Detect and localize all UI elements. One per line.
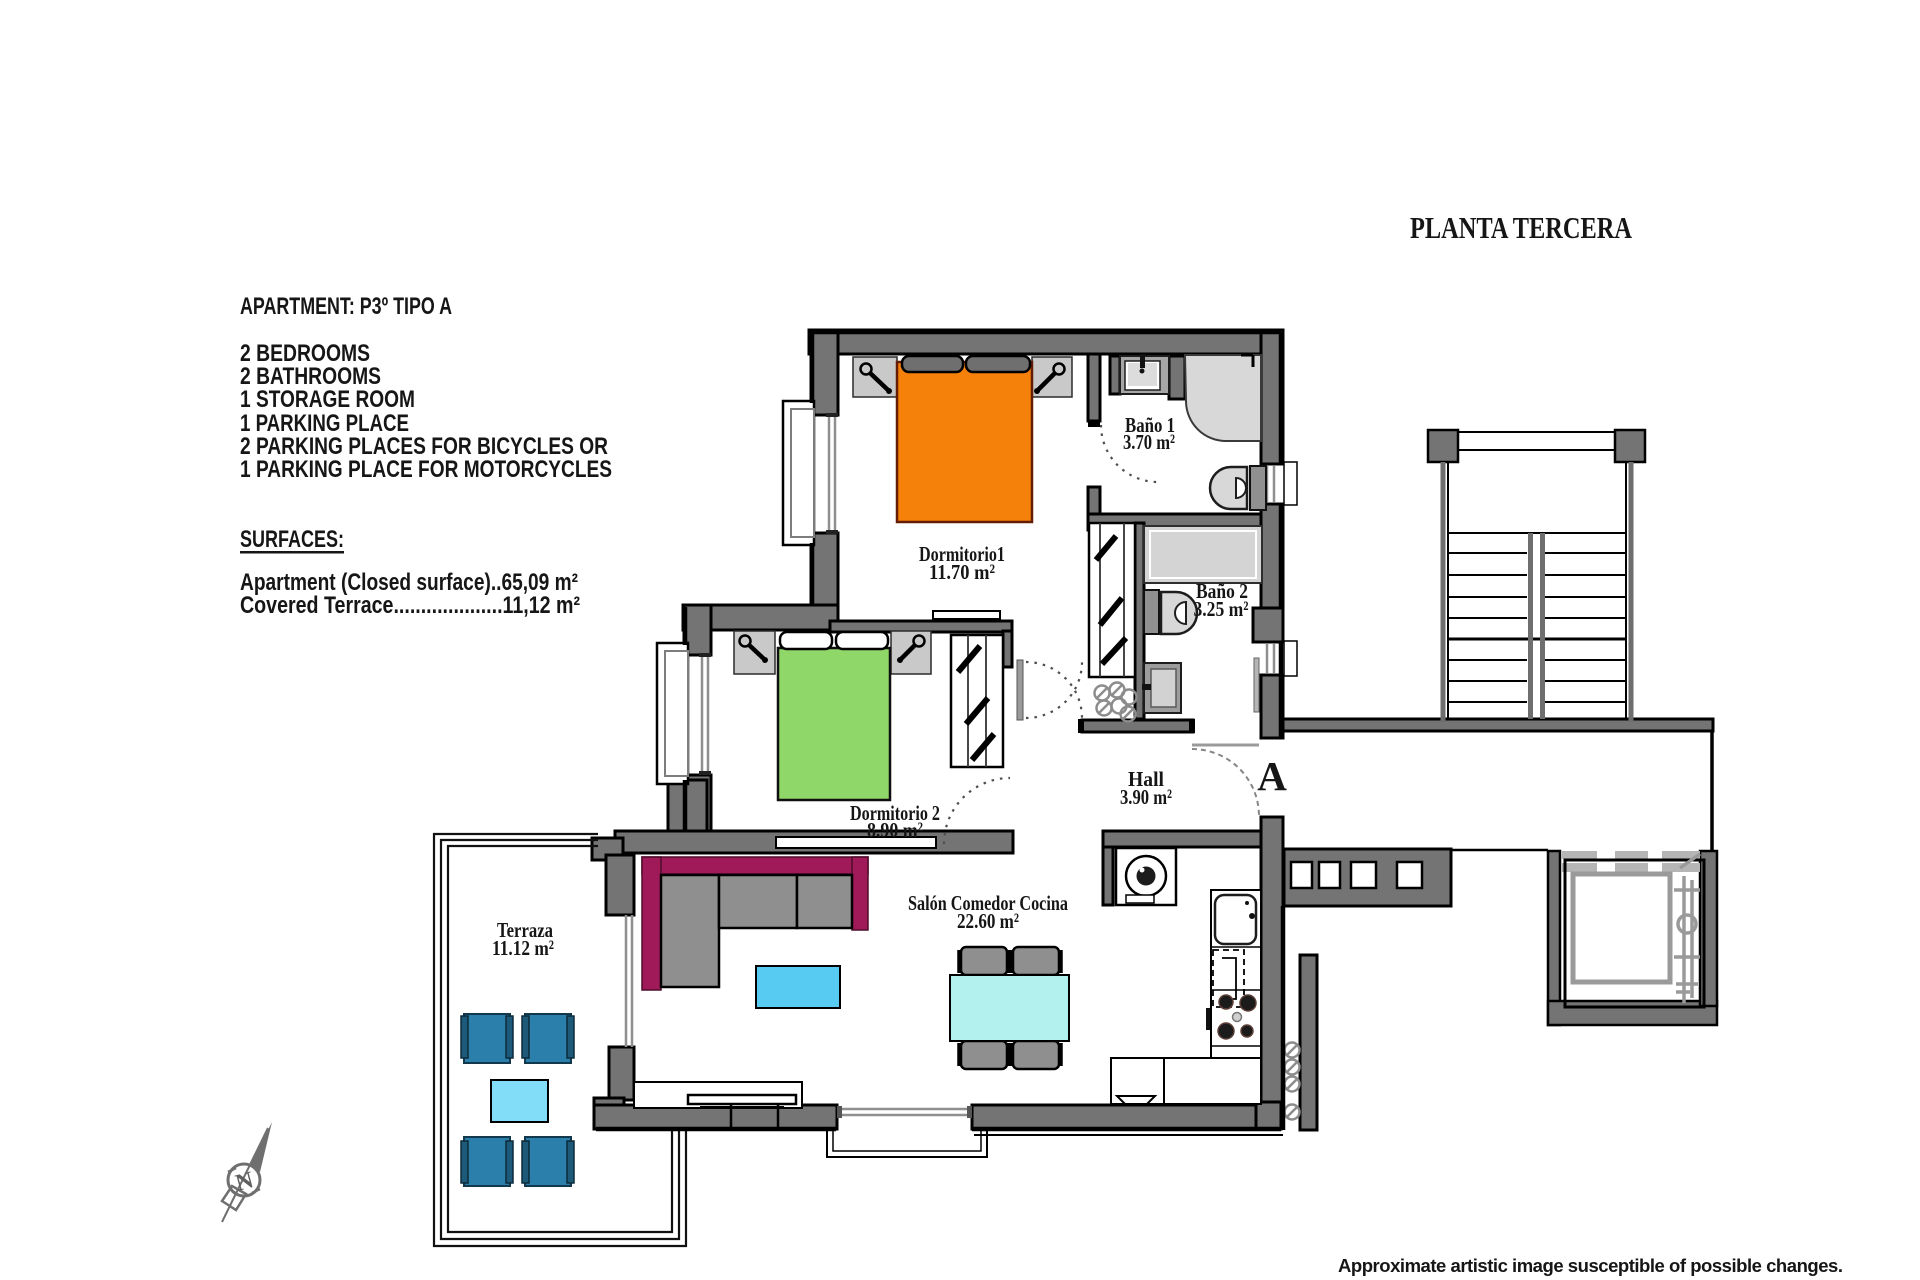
svg-text:8.90 m²: 8.90 m² [867, 818, 923, 842]
svg-text:11.70 m²: 11.70 m² [929, 560, 995, 584]
svg-text:Approximate artistic image sus: Approximate artistic image susceptible o… [1338, 1255, 1843, 1276]
svg-text:3.25 m²: 3.25 m² [1194, 597, 1249, 621]
svg-text:22.60 m²: 22.60 m² [957, 909, 1019, 933]
svg-text:PLANTA TERCERA: PLANTA TERCERA [1410, 210, 1632, 245]
svg-text:1 PARKING PLACE FOR MOTORCYCLE: 1 PARKING PLACE FOR MOTORCYCLES [240, 456, 612, 483]
svg-text:A: A [1257, 753, 1287, 799]
svg-text:SURFACES:: SURFACES: [240, 526, 344, 553]
svg-text:APARTMENT: P3º TIPO A: APARTMENT: P3º TIPO A [240, 293, 452, 320]
svg-text:1 STORAGE ROOM: 1 STORAGE ROOM [240, 386, 415, 413]
svg-text:Covered Terrace...............: Covered Terrace....................11,12… [240, 592, 580, 619]
svg-text:11.12 m²: 11.12 m² [492, 936, 554, 960]
svg-text:3.70 m²: 3.70 m² [1123, 430, 1175, 454]
svg-text:3.90 m²: 3.90 m² [1120, 785, 1172, 809]
